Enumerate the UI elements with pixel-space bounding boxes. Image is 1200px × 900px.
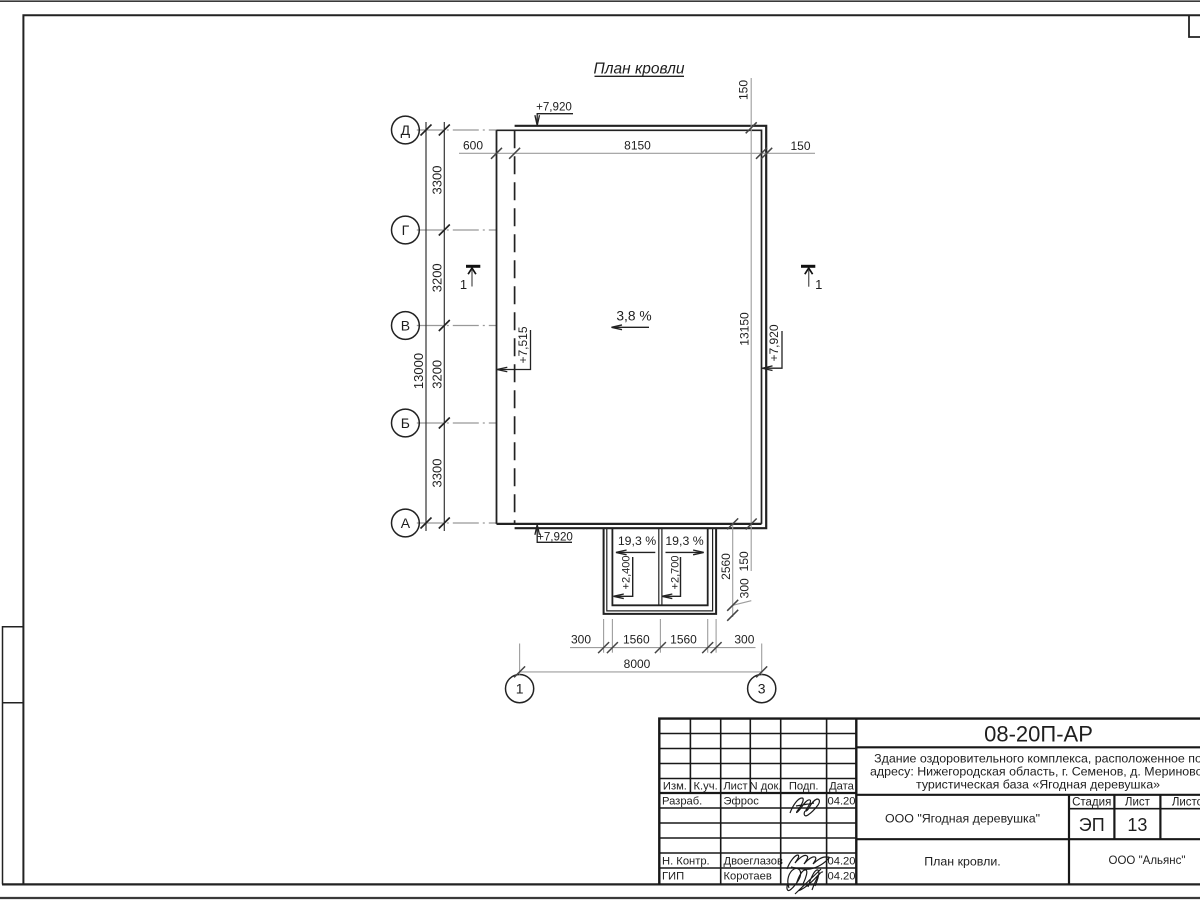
- svg-text:04.20: 04.20: [828, 871, 856, 883]
- svg-text:Здание оздоровительного компле: Здание оздоровительного комплекса, распо…: [874, 752, 1200, 766]
- svg-text:Н. Контр.: Н. Контр.: [662, 856, 710, 868]
- svg-text:08-20П-АР: 08-20П-АР: [984, 721, 1093, 746]
- svg-text:3300: 3300: [430, 459, 445, 488]
- svg-text:Лист: Лист: [1125, 796, 1151, 808]
- svg-text:8150: 8150: [624, 139, 651, 153]
- svg-text:План кровли: План кровли: [594, 61, 685, 78]
- svg-text:3,8 %: 3,8 %: [616, 309, 651, 324]
- svg-text:ООО "Альянс": ООО "Альянс": [1109, 855, 1186, 867]
- svg-text:13: 13: [1127, 815, 1147, 835]
- svg-text:13000: 13000: [411, 353, 426, 389]
- svg-text:Коротаев: Коротаев: [724, 871, 772, 883]
- svg-text:04.20: 04.20: [828, 796, 856, 808]
- svg-text:150: 150: [737, 80, 751, 100]
- svg-text:1560: 1560: [670, 633, 697, 647]
- svg-text:150: 150: [737, 551, 751, 571]
- svg-text:3200: 3200: [430, 360, 445, 389]
- svg-text:1560: 1560: [623, 633, 650, 647]
- svg-text:1: 1: [460, 277, 467, 292]
- svg-text:Г: Г: [402, 222, 410, 238]
- svg-text:Листов: Листов: [1172, 796, 1200, 808]
- svg-text:600: 600: [463, 139, 483, 153]
- svg-text:К.уч.: К.уч.: [694, 781, 718, 793]
- svg-text:8000: 8000: [624, 657, 651, 671]
- svg-text:3300: 3300: [430, 166, 445, 195]
- svg-text:туристическая база «Ягодная де: туристическая база «Ягодная деревушка»: [916, 778, 1160, 792]
- svg-text:2560: 2560: [719, 553, 733, 580]
- svg-text:19,3 %: 19,3 %: [665, 534, 703, 548]
- svg-text:+7,920: +7,920: [536, 100, 572, 113]
- svg-text:+7,515: +7,515: [516, 326, 530, 363]
- svg-text:А: А: [401, 515, 411, 531]
- svg-text:04.20: 04.20: [828, 856, 856, 868]
- svg-text:150: 150: [790, 139, 810, 153]
- svg-text:адресу: Нижегородская область,: адресу: Нижегородская область, г. Семено…: [870, 765, 1200, 779]
- svg-text:Дата: Дата: [829, 781, 855, 793]
- svg-text:19,3 %: 19,3 %: [618, 534, 656, 548]
- svg-text:N док.: N док.: [750, 781, 782, 793]
- svg-text:Подп.: Подп.: [789, 781, 819, 793]
- svg-text:300: 300: [738, 578, 752, 598]
- svg-text:План кровли.: План кровли.: [924, 854, 1000, 868]
- svg-text:Изм.: Изм.: [663, 781, 687, 793]
- svg-text:1: 1: [516, 681, 524, 697]
- svg-text:Двоеглазов: Двоеглазов: [724, 856, 784, 868]
- svg-text:3: 3: [758, 681, 766, 697]
- svg-text:Д: Д: [401, 122, 411, 138]
- svg-text:ООО "Ягодная деревушка": ООО "Ягодная деревушка": [885, 811, 1040, 825]
- svg-text:+7,920: +7,920: [767, 324, 781, 361]
- svg-text:Лист: Лист: [723, 781, 747, 793]
- svg-text:+2,400: +2,400: [621, 556, 633, 590]
- svg-text:В: В: [401, 318, 410, 334]
- svg-text:Разраб.: Разраб.: [662, 796, 702, 808]
- svg-text:ЭП: ЭП: [1079, 815, 1105, 835]
- svg-text:3200: 3200: [430, 263, 445, 292]
- svg-text:1: 1: [815, 277, 822, 292]
- svg-text:Эфрос: Эфрос: [724, 796, 760, 808]
- svg-text:ГИП: ГИП: [662, 871, 684, 883]
- svg-text:300: 300: [571, 633, 591, 647]
- svg-text:13150: 13150: [738, 312, 752, 346]
- svg-text:Стадия: Стадия: [1072, 796, 1111, 808]
- svg-text:Б: Б: [401, 415, 410, 431]
- svg-text:300: 300: [734, 633, 754, 647]
